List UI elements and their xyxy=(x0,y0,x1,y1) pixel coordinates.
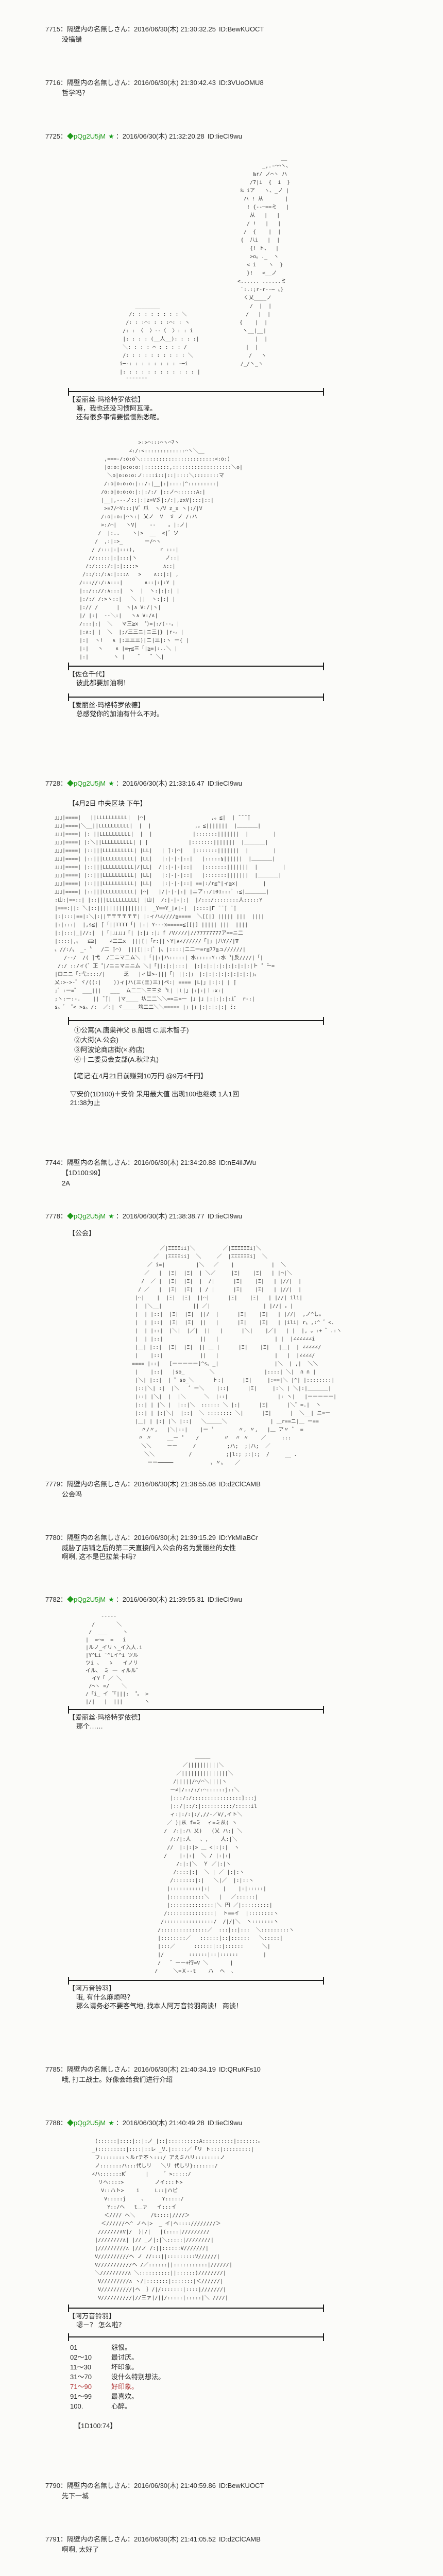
ascii-art: ／|ΞΞΞΞii]＼ ／|ΞΞΞΞΞΞi]＼ ／ |ΞΞΞΞii] ＼ ／ |Ξ… xyxy=(123,1245,427,1467)
impression-label: 坏印象。 xyxy=(111,2363,138,2371)
post-7725: 7725：◆pQg2U5jM★：2016/06/30(木) 21:32:20.2… xyxy=(45,132,427,718)
impression-range: 31～70 xyxy=(70,2372,111,2382)
separator-colon: ： xyxy=(116,2119,123,2127)
post-date: 2016/06/30(木) 21:41:05.52 xyxy=(134,2535,216,2543)
dialogue-speaker: 【阿万音铃羽】 xyxy=(69,1984,427,1993)
post-date: 2016/06/30(木) 21:34:20.88 xyxy=(134,1159,216,1166)
separator-colon: ： xyxy=(60,25,67,33)
impression-row-result: 71～90好印象。 xyxy=(70,2382,427,2392)
post-7778: 7778：◆pQg2U5jM★：2016/06/30(木) 21:38:38.7… xyxy=(45,1212,427,1467)
post-date: 2016/06/30(木) 21:40:34.19 xyxy=(134,2065,216,2073)
impression-range: 71～90 xyxy=(70,2382,111,2392)
post-header: 7780：隔壁内の名無しさん：2016/06/30(木) 21:39:15.29… xyxy=(45,1533,427,1542)
separator-colon: ： xyxy=(116,132,123,140)
post-id: ID:IieCI9wu xyxy=(208,779,242,787)
poster-name: 隔壁内の名無しさん xyxy=(67,1534,127,1541)
ascii-art: ＿＿＿ ／||||||||||＼ ／|||||||||||||||＼ /||||… xyxy=(133,1753,427,1976)
poster-name: 隔壁内の名無しさん xyxy=(67,1480,127,1488)
impression-label: 最喜欢。 xyxy=(111,2393,138,2400)
impression-row: 31～70没什么特别想法。 xyxy=(70,2372,427,2382)
dialogue-line: 那个…… xyxy=(76,1722,427,1731)
dialogue-line: 嘛，我也还没习惯阿瓦隆。 xyxy=(76,404,427,413)
post-id: ID:IieCI9wu xyxy=(208,2119,242,2127)
impression-label: 心醉。 xyxy=(111,2402,131,2410)
impression-range: 11～30 xyxy=(70,2362,111,2372)
ascii-art: ｣｣｣|====| ||LLLLLLLLLL| |⌒| ,。≦| | ̄ ̄ ̄… xyxy=(52,814,427,1012)
poster-name: 隔壁内の名無しさん xyxy=(67,2535,127,2543)
separator-colon: ： xyxy=(60,1480,67,1488)
ascii-art: >:>⌒:::⌒ヽ⌒7ヽ ∠:/:<:::::::::::::⌒ヽ＼__ ,==… xyxy=(76,439,427,662)
impression-label: 好印象。 xyxy=(111,2383,138,2391)
star-icon: ★ xyxy=(108,132,114,140)
star-icon: ★ xyxy=(108,779,114,787)
scene-tag: 【4月2日 中央区块 下午】 xyxy=(69,799,427,808)
dialogue-speaker: 【阿万音铃羽】 xyxy=(69,2312,427,2320)
post-header: 7785：隔壁内の名無しさん：2016/06/30(木) 21:40:34.19… xyxy=(45,2065,427,2074)
post-header: 7715：隔壁内の名無しさん：2016/06/30(木) 21:30:32.25… xyxy=(45,25,427,33)
post-text: 啊啊, 太好了 xyxy=(62,2545,427,2554)
dialogue-speaker: 【爱丽丝·玛格特罗依德】 xyxy=(69,701,427,709)
post-header: 7782：◆pQg2U5jM★：2016/06/30(木) 21:39:55.3… xyxy=(45,1595,427,1604)
post-id: ID:nE4iIJWu xyxy=(219,1159,256,1166)
post-text: 没搞错 xyxy=(62,35,427,44)
separator-colon: ： xyxy=(60,1159,67,1166)
star-icon: ★ xyxy=(108,2119,114,2127)
ascii-art: ----- / ＼ / ___ ヽ | =⌒= = i |ルノ_イリヽ_イ入人.… xyxy=(76,1613,427,1706)
dialogue-line: 总感觉你的加油有什么不对。 xyxy=(76,709,427,718)
separator-colon: ： xyxy=(60,2065,67,2073)
separator-colon: ： xyxy=(127,2065,134,2073)
poster-tripcode: ◆pQg2U5jM xyxy=(67,1596,106,1603)
post-header: 7728：◆pQg2U5jM★：2016/06/30(木) 21:33:16.4… xyxy=(45,779,427,788)
post-text: 公会吗 xyxy=(62,1490,427,1499)
post-id: ID:3VUoOMU8 xyxy=(219,79,264,87)
post-date: 2016/06/30(木) 21:30:32.25 xyxy=(134,25,216,33)
impression-label: 最讨厌。 xyxy=(111,2353,138,2361)
dialogue-separator xyxy=(69,1980,323,1981)
separator-colon: ： xyxy=(60,779,67,787)
separator-colon: ： xyxy=(127,2482,134,2489)
separator-colon: ： xyxy=(127,1159,134,1166)
post-header: 7791：隔壁内の名無しさん：2016/06/30(木) 21:41:05.52… xyxy=(45,2535,427,2544)
poster-tripcode: ◆pQg2U5jM xyxy=(67,1212,106,1220)
separator-colon: ： xyxy=(60,2535,67,2543)
location-option: ③阿波论商店街(×.药店) xyxy=(74,1045,427,1055)
post-7715: 7715：隔壁内の名無しさん：2016/06/30(木) 21:30:32.25… xyxy=(45,25,427,44)
post-7779: 7779：隔壁内の名無しさん：2016/06/30(木) 21:38:55.08… xyxy=(45,1480,427,1499)
dice-roll: 【1D100:99】 xyxy=(62,1168,427,1177)
separator-colon: ： xyxy=(60,2119,67,2127)
post-7788: 7788：◆pQg2U5jM★：2016/06/30(木) 21:40:49.2… xyxy=(45,2119,427,2430)
post-number[interactable]: 7716 xyxy=(45,79,60,87)
post-header: 7779：隔壁内の名無しさん：2016/06/30(木) 21:38:55.08… xyxy=(45,1480,427,1488)
impression-range: 02～10 xyxy=(70,2352,111,2362)
post-number[interactable]: 7779 xyxy=(45,1480,60,1488)
star-icon: ★ xyxy=(108,1212,114,1220)
post-header: 7744：隔壁内の名無しさん：2016/06/30(木) 21:34:20.88… xyxy=(45,1158,427,1167)
post-7790: 7790：隔壁内の名無しさん：2016/06/30(木) 21:40:59.86… xyxy=(45,2481,427,2500)
post-header: 7788：◆pQg2U5jM★：2016/06/30(木) 21:40:49.2… xyxy=(45,2119,427,2127)
poster-tripcode: ◆pQg2U5jM xyxy=(67,2119,106,2127)
separator-colon: ： xyxy=(60,1212,67,1220)
post-date: 2016/06/30(木) 21:38:38.77 xyxy=(123,1212,205,1220)
post-id: ID:d2ClCAMB xyxy=(219,1480,261,1488)
post-7744: 7744：隔壁内の名無しさん：2016/06/30(木) 21:34:20.88… xyxy=(45,1158,427,1188)
impression-label: 没什么特别想法。 xyxy=(111,2373,165,2381)
separator-colon: ： xyxy=(60,2482,67,2489)
ascii-art: (::::::|::::|::|:ノ_|::|::::::::::A::::::… xyxy=(76,2138,427,2302)
post-date: 2016/06/30(木) 21:30:42.43 xyxy=(134,79,216,87)
impression-row: 100.心醉。 xyxy=(70,2401,427,2411)
impression-row: 11～30坏印象。 xyxy=(70,2362,427,2372)
post-number[interactable]: 7780 xyxy=(45,1534,60,1541)
post-number[interactable]: 7744 xyxy=(45,1159,60,1166)
post-text: 啊咧, 这不是巴拉莱卡吗？ xyxy=(62,1552,427,1561)
thread-page: 7715：隔壁内の名無しさん：2016/06/30(木) 21:30:32.25… xyxy=(0,0,443,2576)
dialogue-separator xyxy=(69,1020,323,1021)
impression-row: 01怨恨。 xyxy=(70,2343,427,2352)
poster-name: 隔壁内の名無しさん xyxy=(67,25,127,33)
impression-row: 91～99最喜欢。 xyxy=(70,2392,427,2401)
separator-colon: ： xyxy=(127,25,134,33)
post-header: 7790：隔壁内の名無しさん：2016/06/30(木) 21:40:59.86… xyxy=(45,2481,427,2490)
post-id: ID:IieCI9wu xyxy=(208,1212,242,1220)
impression-range: 100. xyxy=(70,2401,111,2411)
post-header: 7778：◆pQg2U5jM★：2016/06/30(木) 21:38:38.7… xyxy=(45,1212,427,1221)
poster-name: 隔壁内の名無しさん xyxy=(67,2065,127,2073)
separator-colon: ： xyxy=(127,2535,134,2543)
post-7716: 7716：隔壁内の名無しさん：2016/06/30(木) 21:30:42.43… xyxy=(45,78,427,97)
poster-tripcode: ◆pQg2U5jM xyxy=(67,132,106,140)
separator-colon: ： xyxy=(60,79,67,87)
post-date: 2016/06/30(木) 21:39:55.31 xyxy=(123,1596,205,1603)
dialogue-line: 哦, 有什么麻烦吗？ xyxy=(76,1993,427,2002)
post-number[interactable]: 7728 xyxy=(45,779,60,787)
post-date: 2016/06/30(木) 21:32:20.28 xyxy=(123,132,205,140)
impression-range: 91～99 xyxy=(70,2392,111,2401)
location-option: ②大街(A.公会) xyxy=(74,1035,427,1045)
post-id: ID:QRuKFs10 xyxy=(219,2065,261,2073)
post-date: 2016/06/30(木) 21:33:16.47 xyxy=(123,779,205,787)
dialogue-line: 嗯－？ 怎么啦？ xyxy=(76,2320,427,2329)
post-id: ID:d2ClCAMB xyxy=(219,2535,261,2543)
dialogue-separator xyxy=(69,2308,323,2309)
separator-colon: ： xyxy=(127,1480,134,1488)
post-text: 哲学吗？ xyxy=(62,89,427,97)
impression-row: 02～10最讨厌。 xyxy=(70,2352,427,2362)
poster-tripcode: ◆pQg2U5jM xyxy=(67,779,106,787)
post-text: 哦, 打工战士。好像会给我们进行介绍 xyxy=(62,2075,427,2084)
post-number[interactable]: 7790 xyxy=(45,2482,60,2489)
post-text: 2A xyxy=(62,1179,427,1188)
separator-colon: ： xyxy=(127,79,134,87)
post-text: 威胁了店铺之后的第二天直接闯入公会的名为爱丽丝的女性 xyxy=(62,1544,427,1552)
post-id: ID:YkMIaBCr xyxy=(219,1534,258,1541)
location-option: ④十二委员会支部(A.秋津丸) xyxy=(74,1055,427,1064)
dialogue-speaker: 【爱丽丝·玛格特罗依德】 xyxy=(69,395,427,404)
dialogue-line: 那么请务必不要客气地, 找本人阿万音铃羽商谈！ 商谈！ xyxy=(76,2002,427,2010)
post-id: ID:BewKUOCT xyxy=(219,25,264,33)
post-7785: 7785：隔壁内の名無しさん：2016/06/30(木) 21:40:34.19… xyxy=(45,2065,427,2084)
star-icon: ★ xyxy=(108,1596,114,1603)
post-id: ID:IieCI9wu xyxy=(208,132,242,140)
post-date: 2016/06/30(木) 21:39:15.29 xyxy=(134,1534,216,1541)
dialogue-separator xyxy=(69,1709,323,1710)
post-number[interactable]: 7788 xyxy=(45,2119,60,2127)
anchor-rule: ▽安价(1D100)＋安价 采用最大值 出现100也继续 1人1回 xyxy=(70,1090,427,1098)
post-date: 2016/06/30(木) 21:40:49.28 xyxy=(123,2119,205,2127)
dice-roll: 【1D100:74】 xyxy=(74,2421,427,2430)
separator-colon: ： xyxy=(60,1534,67,1541)
dialogue-speaker: 【爱丽丝·玛格特罗依德】 xyxy=(69,1713,427,1722)
anchor-deadline: 21:38为止 xyxy=(70,1098,427,1107)
post-7780: 7780：隔壁内の名無しさん：2016/06/30(木) 21:39:15.29… xyxy=(45,1533,427,1561)
dialogue-line: 还有很多事情要慢慢熟悉呢。 xyxy=(76,413,427,421)
separator-colon: ： xyxy=(116,1596,123,1603)
separator-colon: ： xyxy=(127,1534,134,1541)
location-option: ①公寓(A.唐巣神父 B.船堀 C.黑木智子) xyxy=(74,1025,427,1035)
post-date: 2016/06/30(木) 21:38:55.08 xyxy=(134,1480,216,1488)
post-number[interactable]: 7782 xyxy=(45,1596,60,1603)
post-text: 先下一城 xyxy=(62,2492,427,2500)
poster-name: 隔壁内の名無しさん xyxy=(67,2482,127,2489)
impression-range: 01 xyxy=(70,2343,111,2352)
impression-label: 怨恨。 xyxy=(111,2344,131,2351)
post-number[interactable]: 7785 xyxy=(45,2065,60,2073)
post-header: 7716：隔壁内の名無しさん：2016/06/30(木) 21:30:42.43… xyxy=(45,78,427,87)
separator-colon: ： xyxy=(60,1596,67,1603)
dialogue-separator xyxy=(69,391,323,392)
dialogue-line: 彼此都要加油啊！ xyxy=(76,679,427,687)
poster-name: 隔壁内の名無しさん xyxy=(67,1159,127,1166)
post-number[interactable]: 7725 xyxy=(45,132,60,140)
dialogue-separator xyxy=(69,697,323,698)
scene-tag: 【公会】 xyxy=(69,1229,427,1238)
dialogue-separator xyxy=(69,666,323,667)
post-date: 2016/06/30(木) 21:40:59.86 xyxy=(134,2482,216,2489)
post-7782: 7782：◆pQg2U5jM★：2016/06/30(木) 21:39:55.3… xyxy=(45,1595,427,2010)
post-7728: 7728：◆pQg2U5jM★：2016/06/30(木) 21:33:16.4… xyxy=(45,779,427,1107)
post-number[interactable]: 7778 xyxy=(45,1212,60,1220)
dialogue-separator xyxy=(69,2336,323,2337)
post-7791: 7791：隔壁内の名無しさん：2016/06/30(木) 21:41:05.52… xyxy=(45,2535,427,2554)
separator-colon: ： xyxy=(116,779,123,787)
post-number[interactable]: 7791 xyxy=(45,2535,60,2543)
post-number[interactable]: 7715 xyxy=(45,25,60,33)
dialogue-speaker: 【佐仓千代】 xyxy=(69,670,427,679)
poster-name: 隔壁内の名無しさん xyxy=(67,79,127,87)
gm-note: 【笔记:在4月21日前赚到10万円 @9万4千円】 xyxy=(70,1072,427,1080)
post-id: ID:IieCI9wu xyxy=(208,1596,242,1603)
separator-colon: ： xyxy=(116,1212,123,1220)
ascii-art: __ _,.-⌒⌒ヽ、 ‰r/ ノ⌒ヽ ハ /7|i { i } xyxy=(92,154,427,385)
post-id: ID:BewKUOCT xyxy=(219,2482,264,2489)
separator-colon: ： xyxy=(60,132,67,140)
post-header: 7725：◆pQg2U5jM★：2016/06/30(木) 21:32:20.2… xyxy=(45,132,427,141)
